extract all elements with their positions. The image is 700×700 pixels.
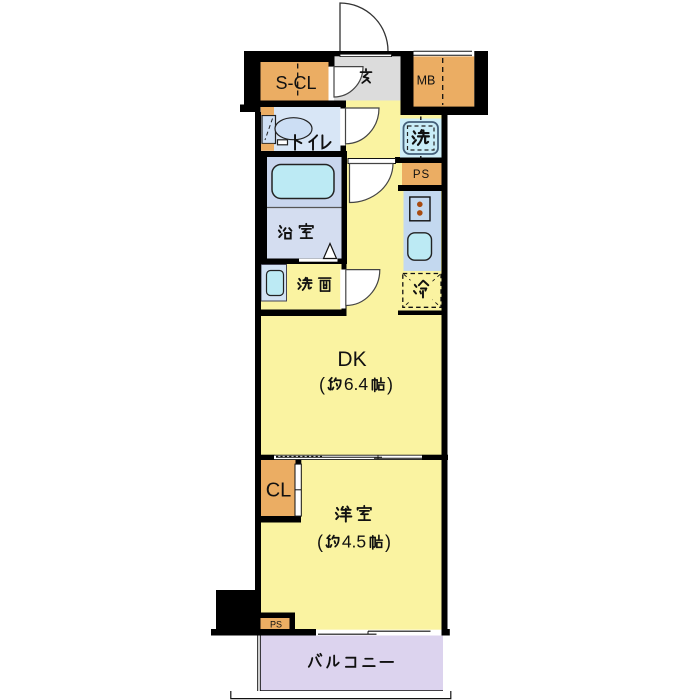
svg-text:4.5: 4.5 (342, 532, 366, 552)
svg-text:S-CL: S-CL (275, 73, 316, 93)
svg-text:PS: PS (413, 169, 430, 181)
svg-text:(: ( (319, 375, 325, 395)
svg-text:): ) (385, 532, 391, 552)
svg-text:PS: PS (270, 620, 282, 630)
svg-text:DK: DK (337, 348, 366, 371)
svg-text:6.4: 6.4 (344, 374, 369, 394)
svg-text:): ) (387, 375, 393, 395)
svg-text:MB: MB (417, 74, 436, 88)
svg-text:CL: CL (266, 480, 292, 502)
svg-text:(: ( (317, 532, 323, 552)
